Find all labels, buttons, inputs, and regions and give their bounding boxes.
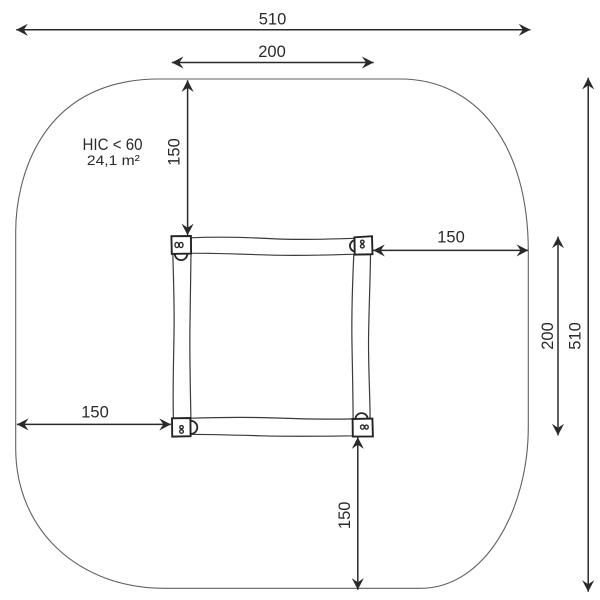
svg-text:150: 150 bbox=[336, 502, 354, 530]
svg-text:150: 150 bbox=[437, 229, 465, 247]
svg-text:150: 150 bbox=[81, 404, 109, 422]
svg-text:510: 510 bbox=[567, 322, 585, 350]
svg-text:150: 150 bbox=[166, 138, 184, 166]
svg-text:510: 510 bbox=[259, 11, 287, 29]
svg-text:HIC < 60: HIC < 60 bbox=[83, 136, 143, 154]
svg-text:24,1 m²: 24,1 m² bbox=[87, 153, 140, 169]
svg-text:200: 200 bbox=[539, 322, 557, 350]
svg-text:200: 200 bbox=[258, 43, 286, 61]
